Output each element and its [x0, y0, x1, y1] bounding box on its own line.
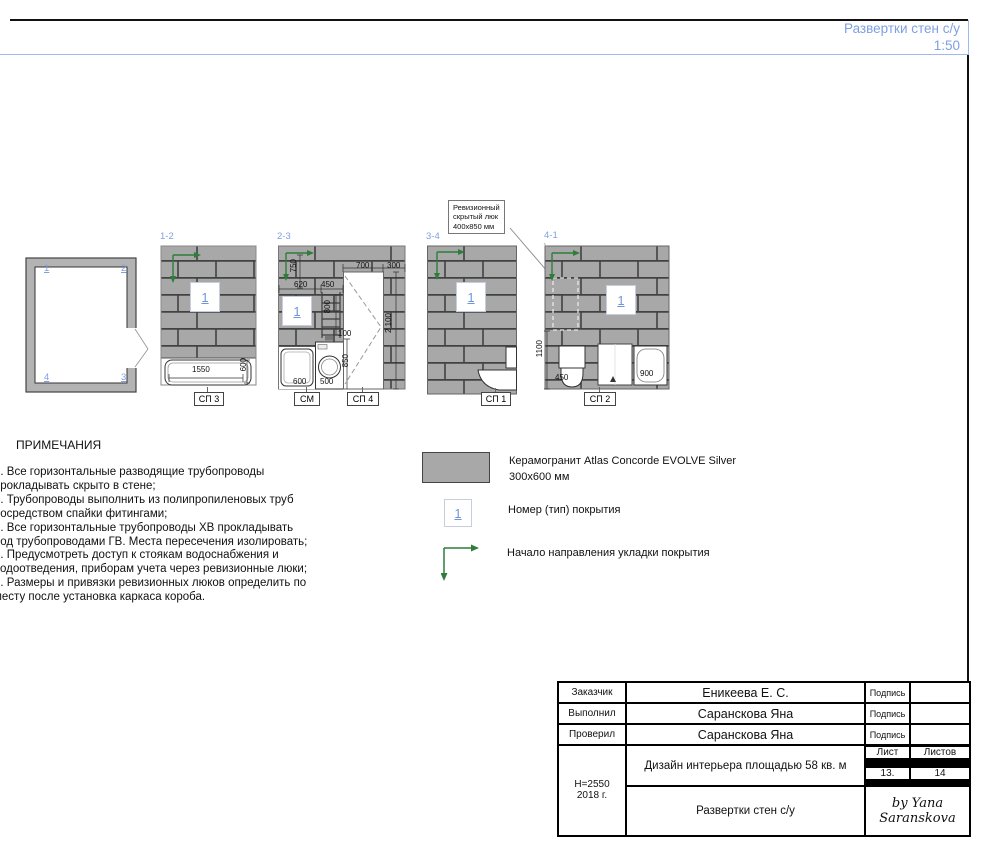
tb-project-title: Дизайн интерьера площадью 58 кв. м — [627, 746, 864, 785]
note-line: месту после установка каркаса короба. — [0, 591, 307, 605]
sink-riser — [506, 347, 517, 368]
coating-number-marker: 1 — [282, 296, 312, 326]
note-line: 2. Трубопроводы выполнить из полипропиле… — [0, 494, 307, 508]
wall-label-sp1: СП 1 — [481, 392, 511, 406]
notes-heading: ПРИМЕЧАНИЯ — [16, 438, 101, 452]
legend-coating-marker: 1 — [444, 499, 472, 527]
elevation-tag-1-2: 1-2 — [160, 232, 174, 242]
coating-number-marker: 1 — [190, 282, 220, 312]
layout-start-arrow-icon — [170, 250, 204, 284]
tb-sign-label: Подпись — [866, 704, 909, 723]
dim-600: 600 — [293, 378, 306, 386]
tb-row-label: Заказчик — [559, 683, 625, 702]
elevation-tag-2-3: 2-3 — [277, 232, 291, 242]
dim-700: 700 — [356, 262, 369, 270]
dim-300: 300 — [387, 262, 400, 270]
legend-marker-label: Номер (тип) покрытия — [508, 503, 621, 519]
elevation-tag-3-4: 3-4 — [426, 232, 440, 242]
tb-row-label: Выполнил — [559, 704, 625, 723]
wall-label-sp4: СП 4 — [347, 392, 379, 406]
tb-year: 2018 г. — [577, 790, 607, 801]
tb-row-value: Саранскова Яна — [627, 725, 864, 744]
dim-750: 750 — [290, 259, 298, 272]
tb-signature: by Yana Saranskova — [866, 787, 969, 835]
tb-sheets-label: Листов — [911, 747, 969, 758]
note-line: 3. Все горизонтальные трубопроводы ХВ пр… — [0, 522, 307, 536]
tb-sheet-number: 13. — [866, 768, 909, 779]
layout-start-arrow-icon — [434, 247, 468, 281]
note-line: посредством спайки фитингами; — [0, 508, 307, 522]
floor-plan — [18, 252, 152, 400]
dim-1100: 1100 — [536, 340, 544, 357]
tb-sheet-label: Лист — [866, 747, 909, 758]
wall-label-sm: СМ — [294, 392, 320, 406]
elevation-tag-4-1: 4-1 — [544, 231, 558, 241]
tb-drawing-title: Развертки стен с/у — [627, 787, 864, 835]
plan-corner-1: 1 — [44, 264, 49, 274]
coating-number-marker: 1 — [456, 282, 486, 312]
tile-swatch — [422, 452, 490, 483]
dim-620: 620 — [294, 281, 307, 289]
dim-bath-depth: 600 — [240, 358, 248, 371]
dim-100: 100 — [338, 330, 351, 338]
dim-bath-length: 1550 — [192, 366, 210, 374]
tb-sheets-total: 14 — [911, 768, 969, 779]
sheet-title-block: Развертки стен с/у 1:50 — [560, 21, 960, 54]
plan-corner-4: 4 — [44, 373, 49, 383]
dim-900: 900 — [640, 370, 653, 378]
tb-row-label: Проверил — [559, 725, 625, 744]
drawing-sheet: Развертки стен с/у 1:50 1 2 4 3 1-2 1 15… — [0, 0, 990, 858]
dim-850: 850 — [342, 354, 350, 367]
dim-500: 500 — [320, 378, 333, 386]
tb-sign-field — [911, 683, 969, 702]
dim-450: 450 — [321, 281, 334, 289]
tb-sign-field — [911, 704, 969, 723]
wall-label-sp3: СП 3 — [194, 392, 224, 406]
door-opening — [125, 328, 137, 368]
note-line: водоотведения, приборам учета через реви… — [0, 563, 307, 577]
dim-2100: 2 100 — [385, 313, 393, 333]
wall-label-sp2: СП 2 — [584, 392, 616, 406]
plan-corner-3: 3 — [121, 373, 126, 383]
sheet-scale: 1:50 — [560, 38, 960, 55]
titlebar-right-line — [968, 20, 970, 55]
legend-arrow-label: Начало направления укладки покрытия — [507, 546, 710, 562]
notes-list: 1. Все горизонтальные разводящие трубопр… — [0, 466, 307, 605]
tb-sign-label: Подпись — [866, 683, 909, 702]
note-line: 4. Предусмотреть доступ к стоякам водосн… — [0, 549, 307, 563]
tb-row-value: Еникеева Е. С. — [627, 683, 864, 702]
tb-sign-label: Подпись — [866, 725, 909, 744]
legend-tile-label: Керамогранит Atlas Concorde EVOLVE Silve… — [509, 454, 736, 485]
layout-start-arrow-icon — [549, 248, 583, 282]
tb-sign-field — [911, 725, 969, 744]
plan-corner-2: 2 — [121, 264, 126, 274]
toilet-tank — [559, 346, 585, 368]
note-line: 1. Все горизонтальные разводящие трубопр… — [0, 466, 307, 480]
dim-450: 450 — [555, 374, 568, 382]
coating-number-marker: 1 — [606, 285, 636, 315]
note-line: прокладывать скрыто в стене; — [0, 480, 307, 494]
note-line: под трубопроводами ГВ. Места пересечения… — [0, 536, 307, 550]
tb-ceiling-height: H=2550 — [574, 779, 609, 790]
title-block: Заказчик Еникеева Е. С. Подпись Выполнил… — [557, 681, 971, 837]
sheet-title: Развертки стен с/у — [560, 21, 960, 38]
layout-start-arrow-icon — [441, 541, 483, 583]
tb-height-year-cell: H=2550 2018 г. — [559, 746, 625, 835]
note-line: 5. Размеры и привязки ревизионных люков … — [0, 577, 307, 591]
tb-sheet-counter: Лист Листов 13. 14 — [866, 746, 969, 785]
dim-800: 800 — [324, 300, 332, 313]
revision-hatch-callout: Ревизионный скрытый люк 400х850 мм — [448, 200, 505, 234]
tb-row-value: Саранскова Яна — [627, 704, 864, 723]
